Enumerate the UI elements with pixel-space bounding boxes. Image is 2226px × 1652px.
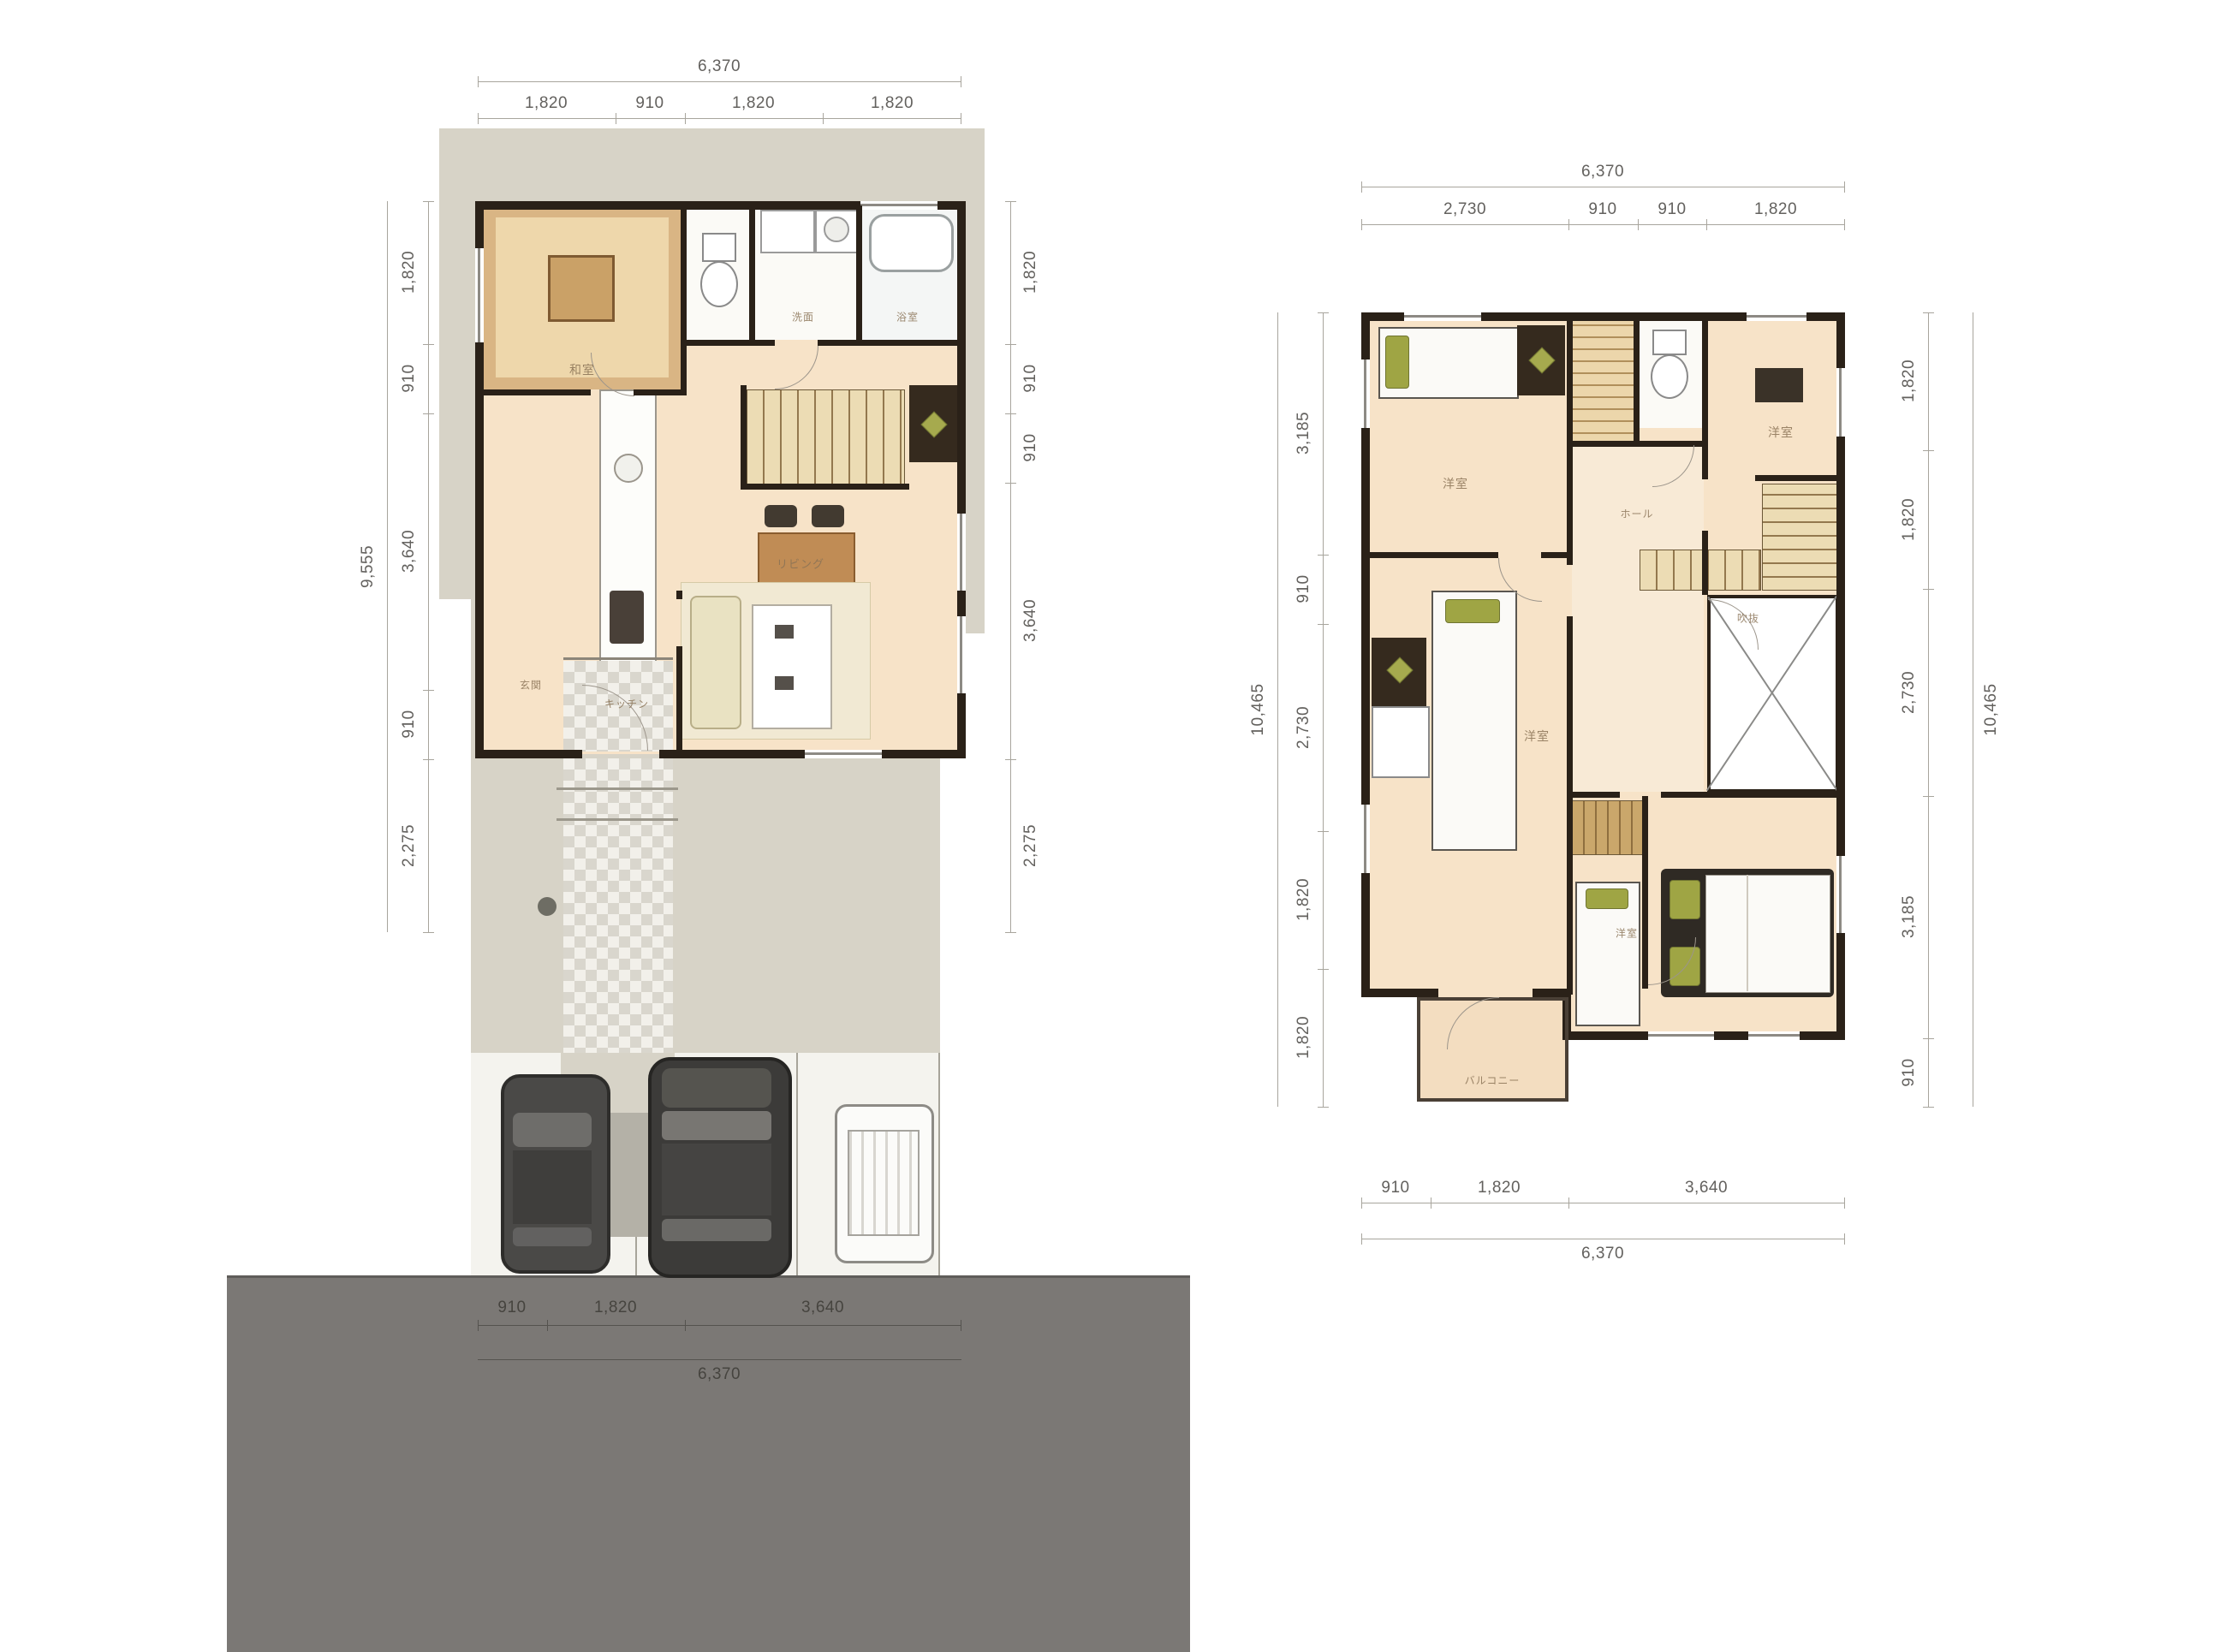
- dim-label: 1,820: [1900, 498, 1919, 541]
- pillow-icon: [1445, 599, 1500, 623]
- wall: [1567, 616, 1573, 995]
- window: [1747, 312, 1806, 321]
- vanity-icon: [760, 210, 815, 253]
- dim-tick: [1844, 1197, 1845, 1209]
- dim-tick: [1923, 1038, 1934, 1039]
- dim-line: [478, 1325, 961, 1326]
- porch-step: [556, 818, 678, 821]
- dining-chair: [812, 505, 844, 527]
- dim-line: [1277, 312, 1278, 1107]
- dim-label: 1,820: [1754, 200, 1797, 219]
- dim-tick: [478, 1320, 479, 1331]
- car-hood: [662, 1068, 771, 1108]
- wall: [741, 385, 747, 488]
- room-label: 洋室: [1768, 424, 1794, 441]
- dim-tick: [1568, 219, 1569, 230]
- dim-line: [1973, 312, 1973, 1107]
- dim-label: 1,820: [1478, 1179, 1521, 1197]
- wall: [475, 201, 860, 210]
- car-rear-window: [662, 1219, 771, 1241]
- room-label: 吹抜: [1737, 611, 1759, 626]
- desk: [1755, 368, 1803, 402]
- dim-line: [1928, 312, 1929, 1107]
- dim-label: 3,640: [801, 1298, 844, 1317]
- wall: [676, 646, 682, 758]
- dim-label: 6,370: [698, 57, 741, 76]
- dim-label: 1,820: [732, 94, 775, 113]
- wall: [882, 750, 966, 758]
- window: [805, 750, 882, 758]
- duvet: [1705, 875, 1830, 993]
- parking-divider: [796, 1053, 798, 1275]
- dim-label: 1,820: [594, 1298, 637, 1317]
- dim-label: 10,465: [1982, 683, 2001, 735]
- dim-tick: [423, 690, 434, 691]
- room-label: ホール: [1620, 507, 1653, 521]
- dim-label: 10,465: [1249, 683, 1268, 735]
- dim-tick: [1706, 219, 1707, 230]
- dim-label: 910: [1021, 433, 1040, 461]
- dim-tick: [478, 76, 479, 87]
- window: [1361, 360, 1370, 428]
- dim-label: 910: [1658, 200, 1686, 219]
- wall: [475, 201, 484, 248]
- room-label: 玄関: [520, 678, 542, 692]
- dim-label: 910: [497, 1298, 526, 1317]
- dim-label: 910: [1021, 364, 1040, 392]
- wall: [957, 591, 966, 616]
- dim-label: 2,730: [1443, 200, 1486, 219]
- car-roof: [513, 1150, 592, 1224]
- room-label: 和室: [569, 361, 595, 378]
- dim-line: [478, 118, 961, 119]
- dim-tick: [616, 113, 616, 124]
- dim-label: 1,820: [400, 251, 419, 294]
- dim-label: 1,820: [1295, 878, 1313, 921]
- window: [1646, 1031, 1714, 1040]
- pillow-icon: [1385, 336, 1409, 389]
- wall: [1702, 312, 1708, 479]
- toilet-icon: [1651, 354, 1688, 399]
- dim-label: 910: [1295, 574, 1313, 603]
- dim-tick: [1005, 344, 1016, 345]
- dim-label: 2,730: [1900, 671, 1919, 714]
- car-windshield: [662, 1111, 771, 1140]
- dim-label: 1,820: [525, 94, 568, 113]
- pillow-icon: [1669, 880, 1700, 919]
- wall: [1642, 1031, 1648, 1040]
- dim-tick: [1005, 759, 1016, 760]
- car-roof: [662, 1144, 771, 1215]
- car-windshield: [513, 1113, 592, 1147]
- wall: [1714, 1031, 1748, 1040]
- dim-line: [1361, 224, 1845, 225]
- room-label: 洋室: [1443, 475, 1468, 492]
- dim-tick: [1318, 624, 1329, 625]
- dim-label: 2,275: [1021, 824, 1040, 867]
- wall: [1661, 792, 1845, 798]
- dim-tick: [478, 113, 479, 124]
- toilet-icon: [700, 261, 738, 307]
- wall: [1755, 475, 1845, 481]
- dim-tick: [1431, 1197, 1431, 1209]
- duvet-fold: [1747, 875, 1748, 991]
- dim-line: [1323, 312, 1324, 1107]
- window: [1836, 856, 1845, 933]
- dim-tick: [961, 113, 961, 124]
- dim-label: 910: [1900, 1058, 1919, 1086]
- dim-line: [478, 1359, 961, 1360]
- dim-tick: [1318, 555, 1329, 556]
- dim-tick: [1318, 831, 1329, 832]
- dim-tick: [1361, 181, 1362, 193]
- dim-tick: [823, 113, 824, 124]
- wall: [1361, 428, 1370, 805]
- wall: [749, 205, 755, 344]
- room-label: リビング: [777, 556, 824, 572]
- dim-tick: [1844, 1233, 1845, 1245]
- dim-tick: [1923, 796, 1934, 797]
- wall: [1361, 873, 1370, 997]
- floor-plan-sheet: 和室 洗面 浴室 キッチン リビング 玄関 6,370 1,820 910 1,…: [0, 0, 2226, 1652]
- wall: [1642, 796, 1648, 989]
- dim-tick: [1923, 589, 1934, 590]
- dim-label: 910: [635, 94, 664, 113]
- dim-label: 6,370: [698, 1365, 741, 1384]
- window: [1836, 368, 1845, 437]
- dim-tick: [1361, 1197, 1362, 1209]
- dim-tick: [961, 1320, 961, 1331]
- wall: [1800, 1031, 1845, 1040]
- dim-label: 3,185: [1295, 412, 1313, 455]
- wall: [685, 340, 775, 346]
- dim-line: [1361, 187, 1845, 187]
- dim-tick: [1844, 181, 1845, 193]
- dim-tick: [1361, 1233, 1362, 1245]
- window: [957, 616, 966, 693]
- dim-tick: [1923, 450, 1934, 451]
- dim-label: 6,370: [1581, 1245, 1624, 1263]
- wall: [1361, 312, 1370, 360]
- kitchen-sink-icon: [614, 454, 643, 483]
- toilet-icon: [702, 233, 736, 262]
- wall: [856, 205, 862, 344]
- pillow-icon: [1586, 888, 1628, 909]
- dim-line: [1361, 1203, 1845, 1203]
- room-label: バルコニー: [1465, 1073, 1521, 1088]
- dim-tick: [1005, 201, 1016, 202]
- dim-label: 910: [1588, 200, 1616, 219]
- dim-label: 3,640: [400, 530, 419, 573]
- dim-tick: [423, 932, 434, 933]
- dim-label: 9,555: [359, 545, 378, 588]
- genkan-step: [563, 657, 673, 660]
- dim-tick: [1005, 483, 1016, 484]
- dim-tick: [423, 344, 434, 345]
- wall: [1634, 312, 1640, 445]
- sofa: [690, 596, 741, 729]
- approach-tile: [563, 758, 673, 1053]
- washer-icon: [824, 217, 849, 242]
- wall: [1361, 989, 1438, 997]
- dim-label: 3,640: [1685, 1179, 1728, 1197]
- table-item: [775, 676, 794, 690]
- wall: [957, 201, 966, 514]
- room-label: 浴室: [896, 310, 919, 324]
- dim-label: 2,730: [1295, 706, 1313, 749]
- dim-label: 2,275: [400, 824, 419, 867]
- bathtub-icon: [869, 214, 954, 272]
- car-rear-window: [513, 1227, 592, 1246]
- dim-line: [1010, 201, 1011, 932]
- wall: [1568, 1031, 1646, 1040]
- dim-tick: [1923, 1107, 1934, 1108]
- dim-tick: [1568, 1197, 1569, 1209]
- dim-line: [478, 81, 961, 82]
- coffee-table: [752, 604, 832, 729]
- wall: [957, 693, 966, 758]
- bed: [1431, 591, 1517, 851]
- room-label: 洋室: [1524, 728, 1550, 745]
- tatami-table: [548, 255, 615, 322]
- stairs-2f-run: [1640, 550, 1761, 591]
- dim-tick: [1361, 219, 1362, 230]
- shrub-icon: [538, 897, 556, 916]
- dim-tick: [1923, 312, 1934, 313]
- stove-icon: [610, 591, 644, 644]
- stairs-2f: [1762, 484, 1839, 591]
- dim-tick: [685, 1320, 686, 1331]
- wall: [1836, 933, 1845, 1038]
- dim-tick: [423, 201, 434, 202]
- window: [1404, 312, 1481, 321]
- road: [227, 1275, 1190, 1652]
- wall: [676, 591, 682, 599]
- dim-line: [1361, 1239, 1845, 1239]
- closet-lower: [1372, 706, 1430, 778]
- parking-divider: [938, 1053, 940, 1275]
- kei-van-roof: [848, 1130, 920, 1236]
- dim-tick: [1005, 932, 1016, 933]
- toilet-icon: [1652, 330, 1687, 355]
- futon-closet: [1572, 800, 1647, 855]
- closet-folding: [1572, 318, 1635, 445]
- wall: [1361, 552, 1498, 558]
- dim-label: 910: [1381, 1179, 1409, 1197]
- wall: [1702, 531, 1708, 595]
- dim-tick: [1844, 219, 1845, 230]
- dim-tick: [423, 413, 434, 414]
- dim-label: 6,370: [1581, 163, 1624, 181]
- window: [475, 248, 484, 342]
- wall: [1568, 792, 1620, 798]
- wall: [681, 205, 687, 344]
- dim-tick: [685, 113, 686, 124]
- dim-label: 1,820: [871, 94, 914, 113]
- table-item: [775, 625, 794, 639]
- dim-tick: [1318, 1107, 1329, 1108]
- dim-tick: [1318, 969, 1329, 970]
- dim-line: [428, 201, 429, 932]
- dim-label: 3,640: [1021, 599, 1040, 642]
- hall-floor: [1572, 445, 1704, 792]
- wall: [681, 344, 687, 395]
- room-label: キッチン: [604, 697, 649, 711]
- window: [860, 201, 937, 210]
- wall: [1567, 312, 1573, 565]
- wall: [475, 342, 484, 758]
- dim-label: 1,820: [1900, 360, 1919, 402]
- window: [1361, 805, 1370, 873]
- window: [1748, 1031, 1800, 1040]
- window: [957, 514, 966, 591]
- dim-label: 1,820: [1295, 1016, 1313, 1059]
- porch-step: [556, 787, 678, 790]
- dim-line: [387, 201, 388, 932]
- dim-label: 1,820: [1021, 251, 1040, 294]
- room-label: 洗面: [792, 310, 814, 324]
- wall: [1836, 312, 1845, 368]
- wall: [634, 389, 687, 395]
- dim-tick: [1005, 413, 1016, 414]
- dim-tick: [547, 1320, 548, 1331]
- dim-label: 3,185: [1900, 895, 1919, 938]
- dim-tick: [1638, 219, 1639, 230]
- dim-label: 910: [400, 710, 419, 738]
- wall: [475, 389, 591, 395]
- wall: [741, 484, 909, 490]
- wall: [818, 340, 966, 346]
- dim-tick: [423, 759, 434, 760]
- dim-tick: [961, 76, 961, 87]
- room-label: 洋室: [1616, 926, 1638, 941]
- dim-label: 910: [400, 364, 419, 392]
- dining-chair: [765, 505, 797, 527]
- wall: [475, 750, 582, 758]
- stairs-1f: [747, 389, 905, 485]
- dim-tick: [1318, 312, 1329, 313]
